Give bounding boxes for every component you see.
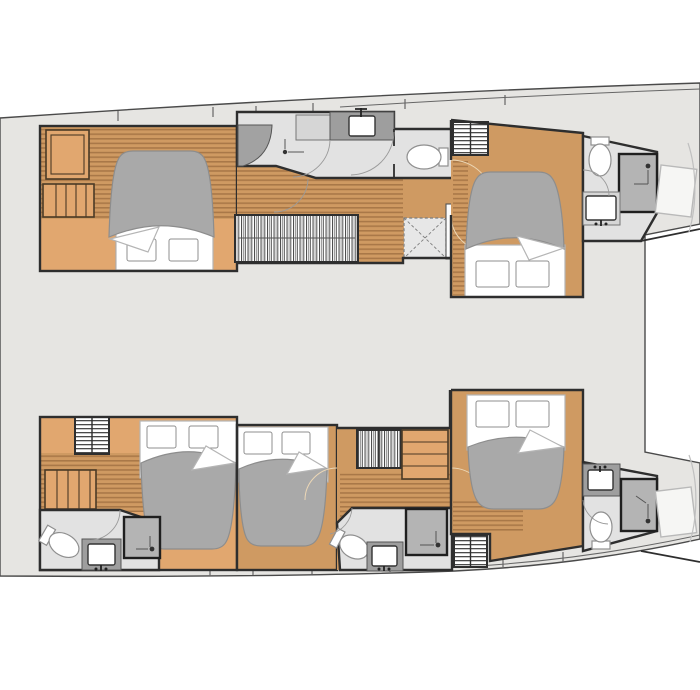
double-bed	[465, 172, 565, 297]
double-bed	[109, 151, 214, 270]
port-companionway	[235, 166, 457, 263]
duvet	[466, 172, 564, 249]
steps	[45, 470, 96, 509]
toilet	[589, 137, 611, 176]
pillow	[244, 432, 272, 454]
duvet	[239, 459, 327, 546]
shower	[619, 154, 657, 212]
pillow	[516, 261, 549, 287]
louvered-locker	[453, 122, 488, 155]
crew-berth	[655, 165, 697, 217]
shower	[124, 517, 160, 558]
pillow	[169, 239, 198, 261]
port-aft-cabin	[40, 126, 237, 271]
pillow	[476, 261, 509, 287]
bulwark-line	[641, 551, 700, 562]
toilet	[407, 145, 448, 169]
steps	[43, 184, 94, 217]
duvet	[109, 151, 214, 237]
starboard-aft-bathroom	[38, 510, 160, 571]
pillow	[476, 401, 509, 427]
toilet	[590, 512, 612, 549]
catamaran-floor-plan: Catamaran interior deck plan, top-down v…	[0, 0, 700, 690]
floor-plan-canvas: Catamaran interior deck plan, top-down v…	[0, 0, 700, 690]
shower	[621, 479, 657, 531]
starboard-mid-cabin	[237, 425, 337, 570]
side-counter	[296, 115, 330, 140]
pillow	[189, 426, 218, 448]
shelf-locker	[75, 417, 109, 454]
pillow	[516, 401, 549, 427]
shower	[406, 509, 447, 555]
steps	[402, 430, 448, 479]
louvered-locker	[454, 535, 487, 567]
pillow	[147, 426, 176, 448]
double-bed	[238, 427, 328, 546]
pillow	[282, 432, 310, 454]
slatted-locker	[357, 430, 401, 468]
washbasin	[367, 542, 403, 571]
washbasin	[583, 192, 620, 226]
vanity-desk	[46, 130, 89, 179]
port-forward-cabin	[451, 120, 583, 297]
washbasin	[82, 539, 121, 571]
crew-berth	[655, 487, 696, 537]
double-bed	[467, 395, 565, 509]
deck-hatch	[404, 218, 446, 258]
hanging-wardrobe	[235, 215, 358, 262]
washbasin	[583, 464, 620, 496]
